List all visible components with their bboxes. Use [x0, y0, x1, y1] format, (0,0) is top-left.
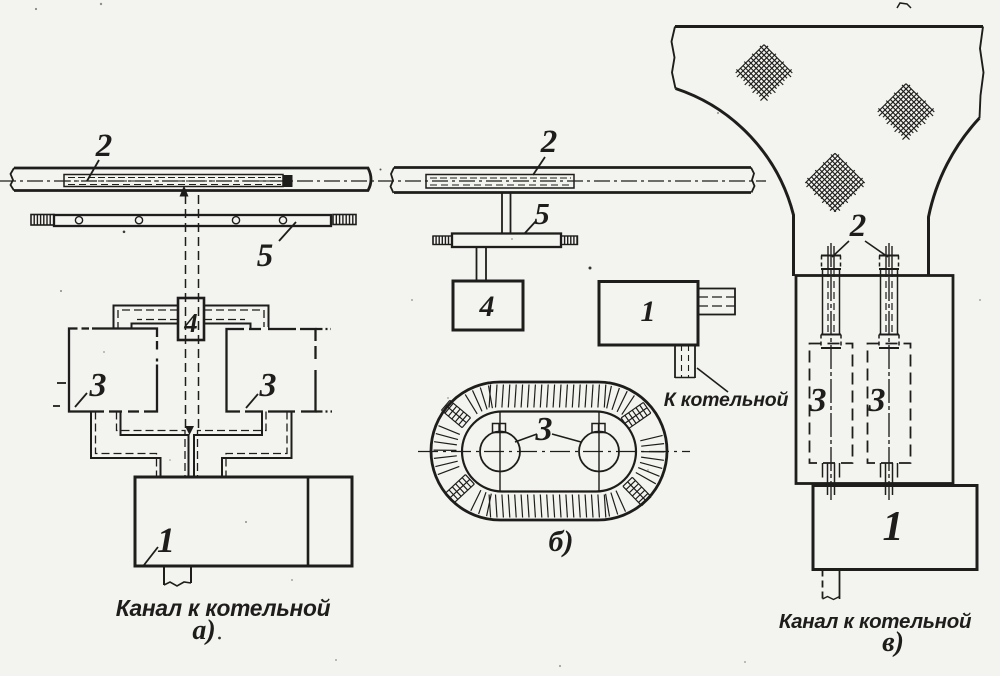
svg-text:3: 3: [259, 367, 277, 404]
svg-text:б): б): [549, 525, 574, 558]
svg-text:К котельной: К котельной: [664, 389, 789, 411]
svg-text:3: 3: [89, 367, 107, 404]
svg-text:3: 3: [535, 411, 553, 448]
svg-text:3: 3: [809, 382, 827, 419]
svg-text:2: 2: [95, 128, 113, 164]
svg-text:в): в): [882, 627, 904, 658]
svg-text:Канал к котельной: Канал к котельной: [779, 610, 972, 633]
svg-text:1: 1: [157, 520, 175, 560]
svg-text:1: 1: [641, 295, 656, 328]
svg-text:Канал к котельной: Канал к котельной: [116, 595, 331, 621]
svg-text:3: 3: [868, 382, 886, 419]
svg-text:4: 4: [479, 290, 495, 323]
svg-text:а): а): [192, 615, 215, 646]
svg-text:2: 2: [540, 124, 558, 160]
svg-text:1: 1: [883, 504, 904, 550]
svg-text:5: 5: [257, 238, 274, 274]
svg-text:5: 5: [534, 196, 550, 231]
svg-text:2: 2: [849, 208, 867, 244]
svg-text:4: 4: [183, 308, 198, 338]
